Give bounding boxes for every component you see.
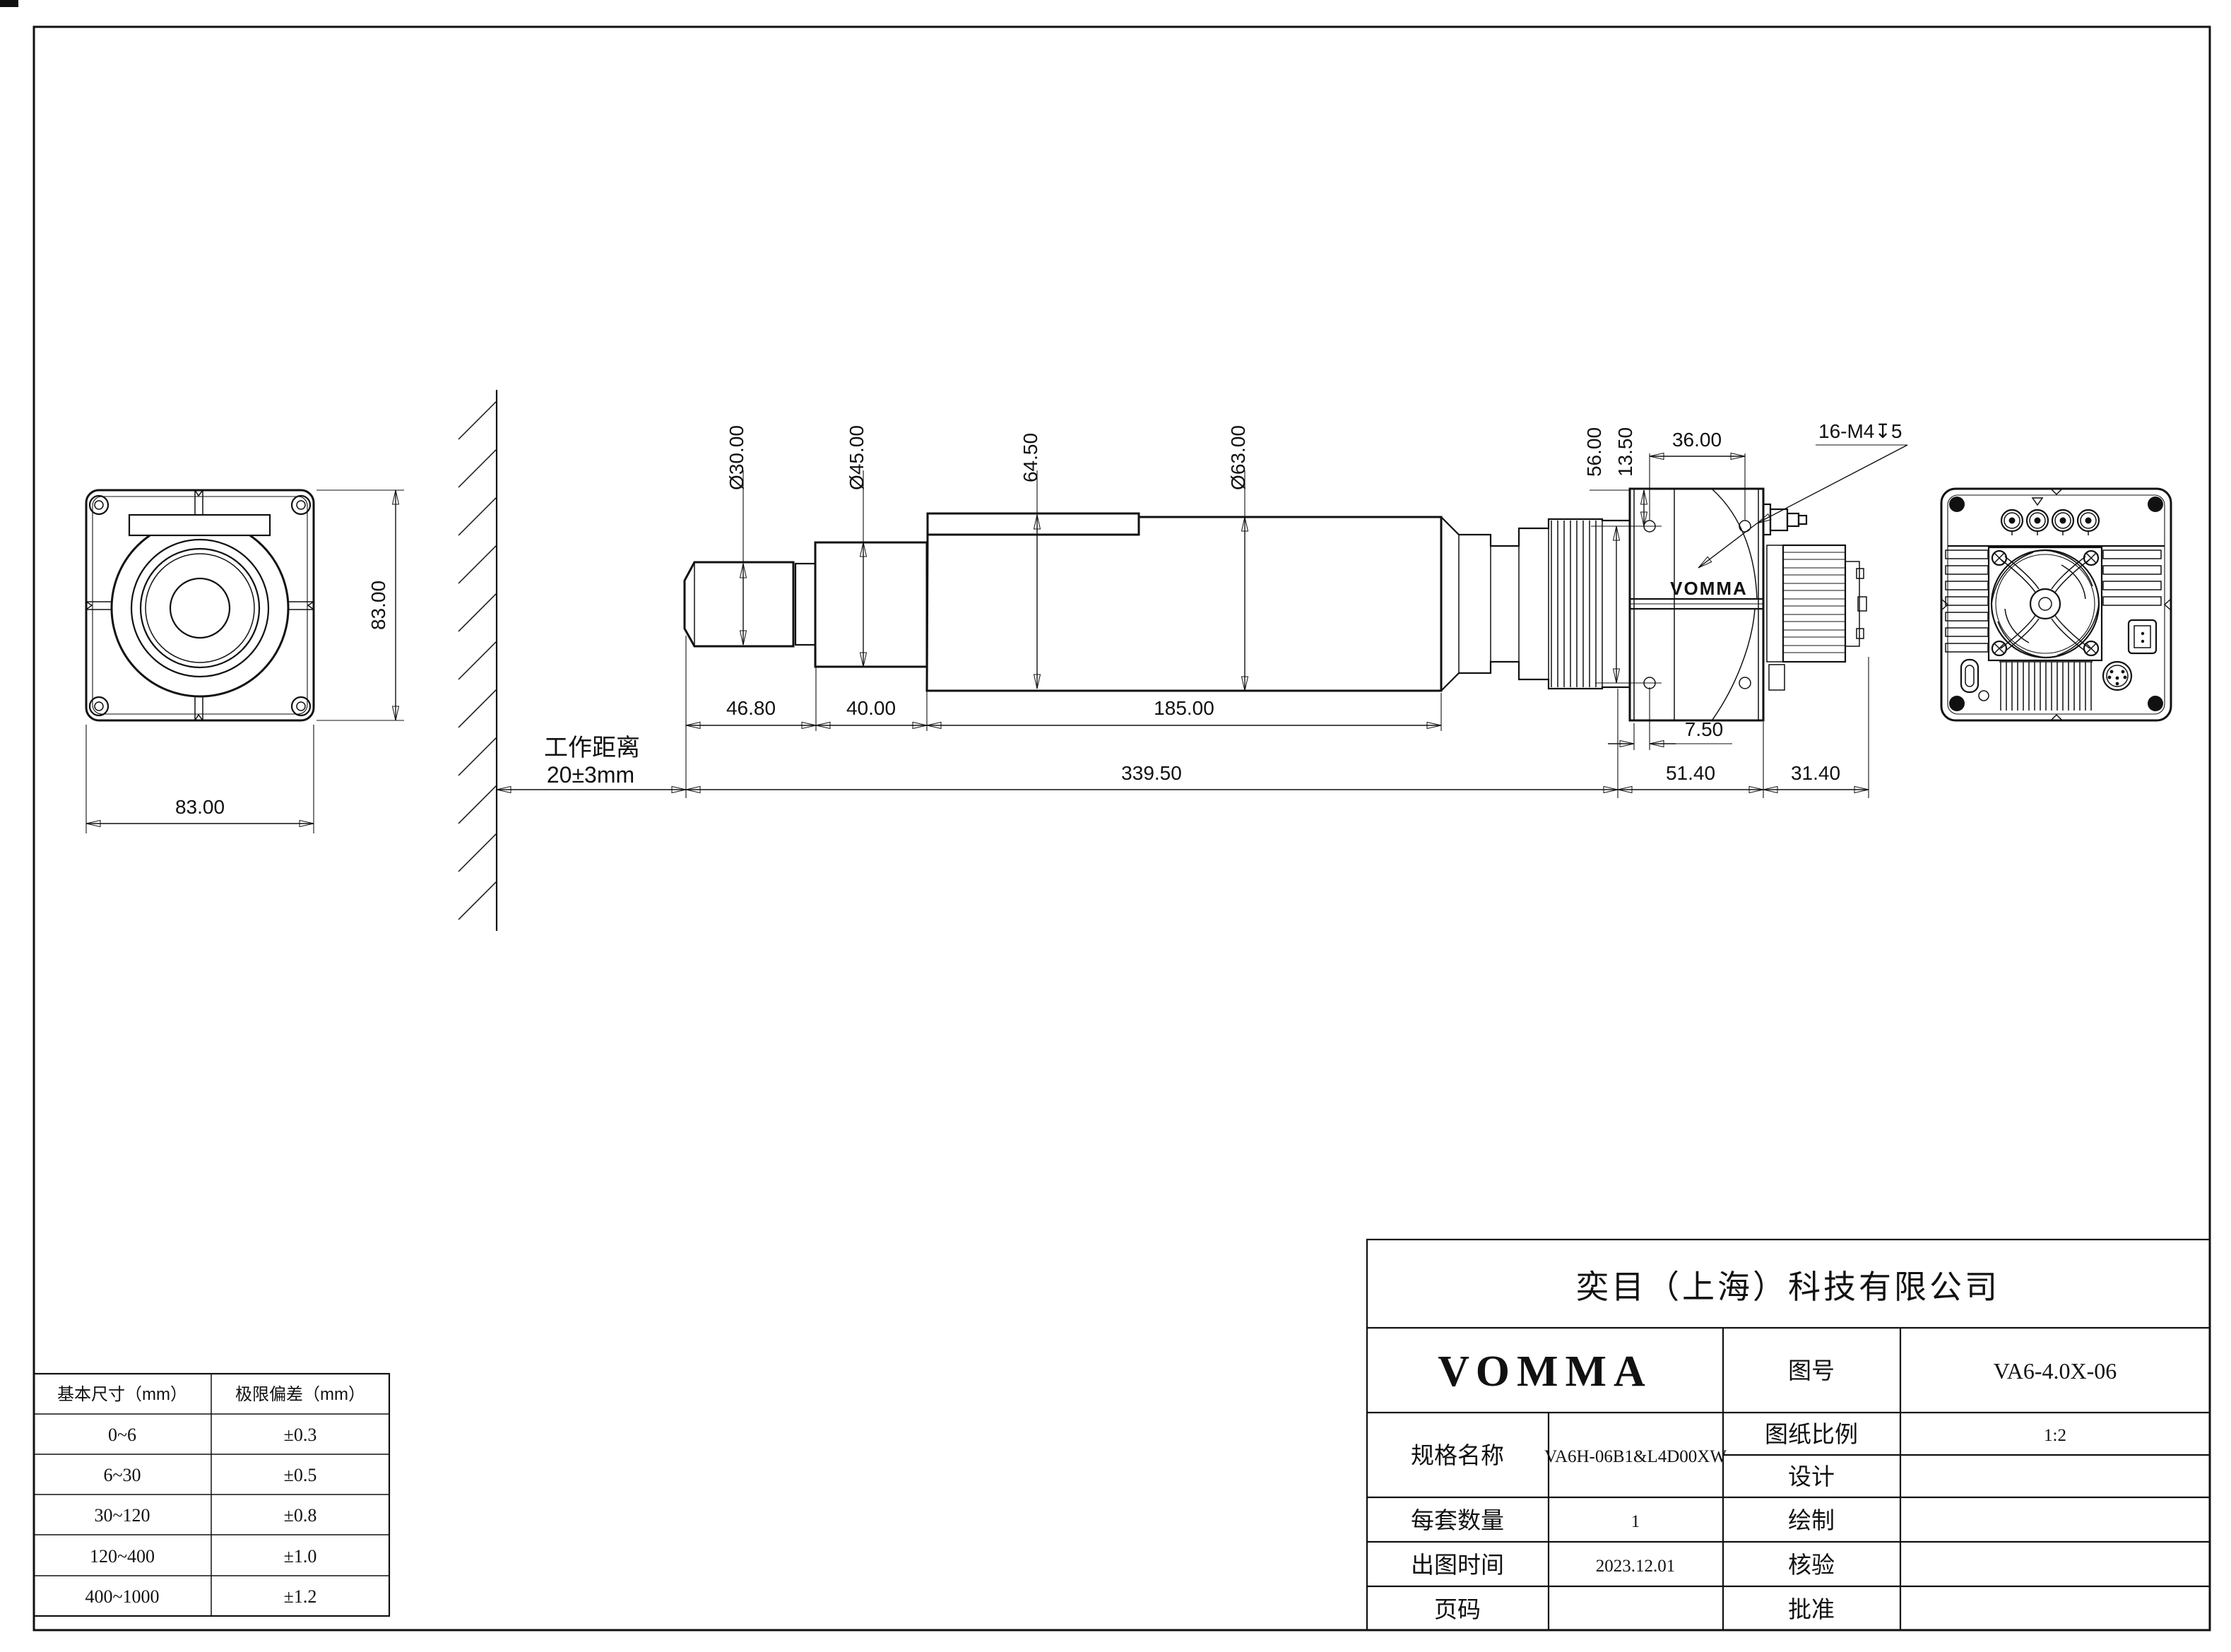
company-name: 奕目（上海）科技有限公司 <box>1576 1269 2000 1305</box>
dim-36-00: 36.00 <box>1672 429 1722 451</box>
front-dimensions: 83.00 83.00 <box>86 490 404 833</box>
dim-339-50: 339.50 <box>1121 762 1182 784</box>
tolerance-table: 基本尺寸（mm） 极限偏差（mm） 0~6 ±0.3 6~30 ±0.5 30~… <box>34 1374 389 1616</box>
heatsink-side <box>1767 545 1866 662</box>
dim-dia-30: Ø30.00 <box>726 425 747 490</box>
spec-label: 规格名称 <box>1411 1442 1504 1468</box>
check-label: 核验 <box>1788 1552 1835 1578</box>
cooling-fan <box>1989 547 2102 660</box>
date-value: 2023.12.01 <box>1596 1557 1676 1576</box>
side-bottom-dimensions: 46.80 40.00 185.00 339.50 51.40 31.40 工作… <box>497 636 1869 798</box>
tol-row3-dev: ±1.0 <box>284 1546 317 1567</box>
dim-31-40: 31.40 <box>1791 762 1840 784</box>
power-connector <box>2103 662 2131 690</box>
design-label: 设计 <box>1788 1463 1835 1490</box>
usb-c-port <box>1961 660 1978 692</box>
head-bottom-port <box>1769 665 1785 690</box>
scale-value: 1:2 <box>2044 1426 2066 1445</box>
tol-row2-range: 30~120 <box>94 1505 150 1526</box>
dim-64-50: 64.50 <box>1019 433 1041 482</box>
rear-indicator-connectors <box>2001 498 2099 535</box>
thread-callout: 16-M4↧5 <box>1818 420 1902 442</box>
tol-row4-dev: ±1.2 <box>284 1586 317 1607</box>
corner-print-mark <box>0 0 18 7</box>
tol-row4-range: 400~1000 <box>85 1586 159 1607</box>
qty-label: 每套数量 <box>1411 1507 1504 1533</box>
drawing-no-label: 图号 <box>1788 1357 1835 1384</box>
front-dim-width: 83.00 <box>175 796 225 818</box>
qty-value: 1 <box>1631 1512 1640 1531</box>
dim-dia-45: Ø45.00 <box>846 425 868 490</box>
dim-185-00: 185.00 <box>1154 697 1214 719</box>
front-lens-circles <box>112 520 288 696</box>
work-distance-label: 工作距离 <box>544 735 640 761</box>
tol-header-basic: 基本尺寸（mm） <box>57 1385 187 1404</box>
dim-56-00: 56.00 <box>1583 427 1605 477</box>
data-port <box>2129 620 2156 653</box>
side-view: VOMMA <box>458 390 1907 931</box>
status-led <box>1979 691 1989 701</box>
engineering-drawing: 83.00 83.00 <box>0 0 2231 1652</box>
brand-logo-text: VOMMA <box>1438 1348 1652 1396</box>
wall-hatching <box>458 390 497 931</box>
dim-13-50: 13.50 <box>1614 427 1636 477</box>
tol-row1-dev: ±0.5 <box>284 1465 317 1485</box>
rear-view <box>1941 489 2171 720</box>
front-top-bar <box>129 515 270 535</box>
front-view: 83.00 83.00 <box>86 490 404 833</box>
tol-header-limit: 极限偏差（mm） <box>235 1385 365 1404</box>
date-label: 出图时间 <box>1411 1552 1504 1578</box>
rear-bottom-fins <box>1999 662 2093 711</box>
tol-row2-dev: ±0.8 <box>284 1505 317 1526</box>
dim-40-00: 40.00 <box>846 697 896 719</box>
lens-outline <box>685 513 1630 691</box>
page-label: 页码 <box>1434 1596 1481 1622</box>
dim-7-50: 7.50 <box>1685 718 1724 740</box>
dim-dia-63: Ø63.00 <box>1227 425 1249 490</box>
draft-label: 绘制 <box>1788 1507 1835 1533</box>
tol-row1-range: 6~30 <box>103 1465 141 1485</box>
camera-head: VOMMA <box>1630 489 1866 720</box>
side-top-dimensions: Ø30.00 Ø45.00 64.50 Ø63.00 <box>726 425 1249 691</box>
title-block: 奕目（上海）科技有限公司 VOMMA 图号 VA6-4.0X-06 规格名称 V… <box>1367 1240 2210 1630</box>
dim-51-40: 51.40 <box>1666 762 1715 784</box>
front-dim-height: 83.00 <box>367 581 389 630</box>
scale-label: 图纸比例 <box>1765 1421 1858 1447</box>
tol-row0-range: 0~6 <box>108 1425 136 1445</box>
bellows-ribs <box>1551 521 1596 687</box>
head-logo-text: VOMMA <box>1670 578 1748 599</box>
approve-label: 批准 <box>1788 1596 1835 1622</box>
body-top-rail <box>928 513 1139 535</box>
tol-row3-range: 120~400 <box>90 1546 155 1567</box>
tol-row0-dev: ±0.3 <box>284 1425 317 1445</box>
work-distance-value: 20±3mm <box>547 762 634 788</box>
head-screw-holes <box>1644 521 1751 689</box>
drawing-no-value: VA6-4.0X-06 <box>1994 1358 2117 1384</box>
dim-46-80: 46.80 <box>726 697 776 719</box>
spec-value: VA6H-06B1&L4D00XW <box>1544 1447 1727 1466</box>
fan-guard <box>2001 557 2090 651</box>
